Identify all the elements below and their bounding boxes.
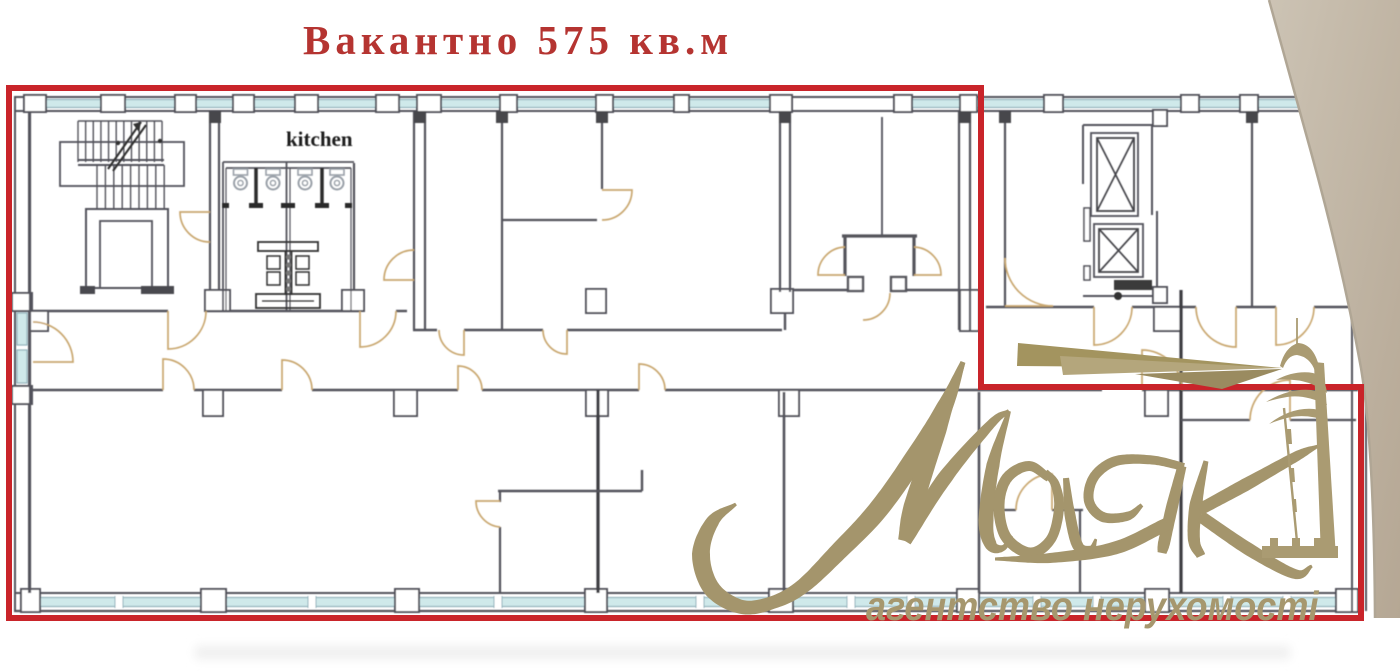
svg-text:Вакантно 575 кв.м: Вакантно 575 кв.м <box>303 17 733 63</box>
svg-text:kitchen: kitchen <box>286 127 353 151</box>
svg-text:агентство нерухомості: агентство нерухомості <box>866 584 1320 630</box>
